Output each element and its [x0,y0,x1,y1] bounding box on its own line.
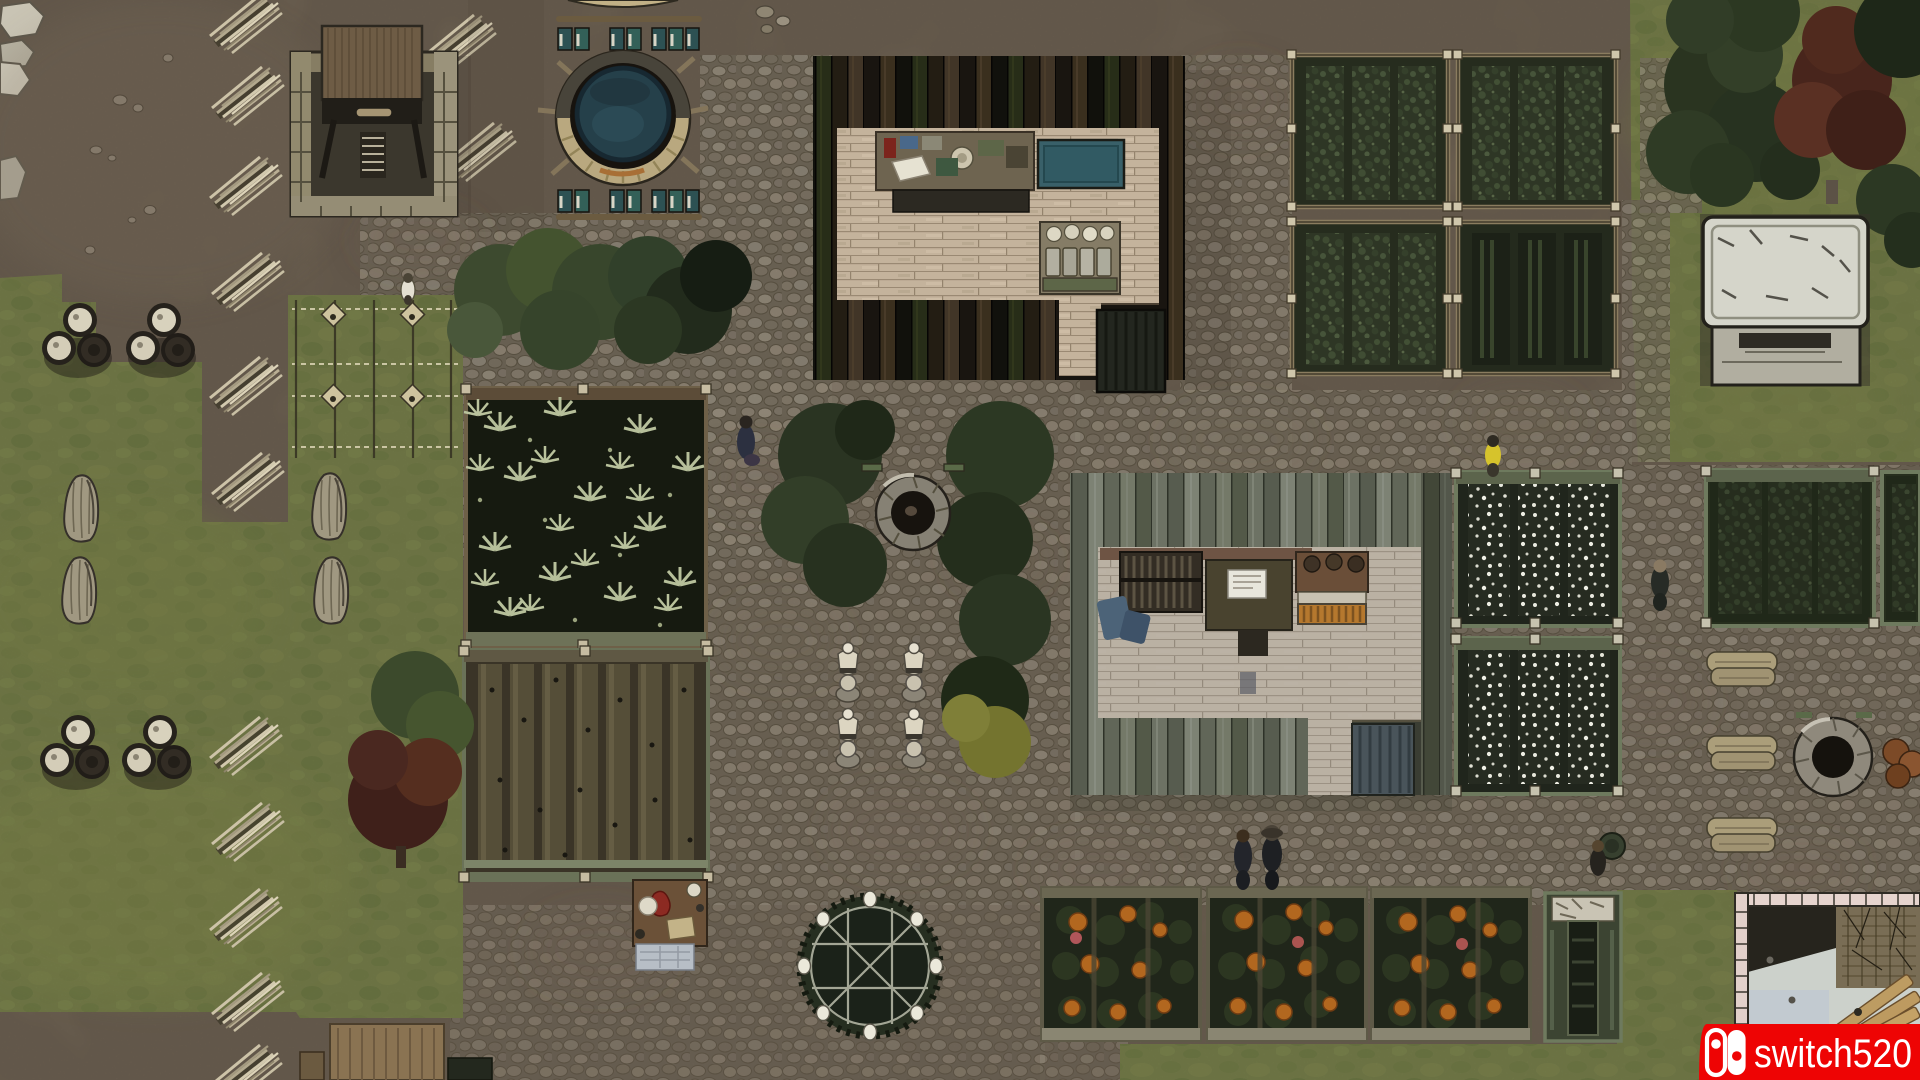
svg-text:switch520: switch520 [1754,1032,1912,1076]
